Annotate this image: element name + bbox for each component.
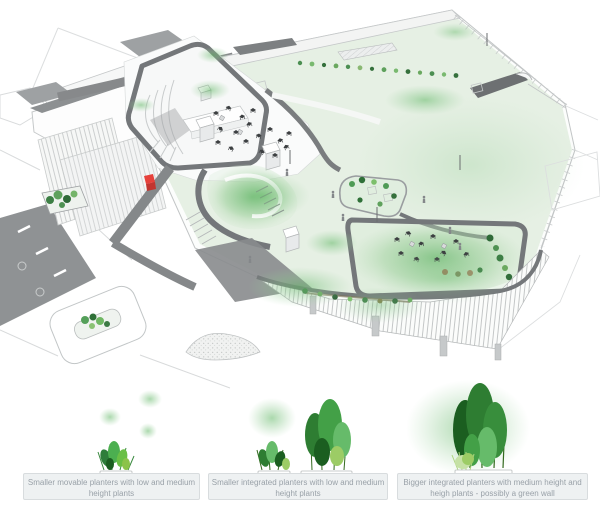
legend-illustrations [98, 380, 530, 477]
architectural-diagram-page: Smaller movable planters with low and me… [0, 0, 600, 523]
axonometric-roof-plan [0, 0, 600, 523]
legend-caption-smaller-integrated-planters: Smaller integrated planters with low and… [208, 473, 388, 500]
movable-planter-icon [98, 390, 162, 477]
bigger-integrated-planter-icon [406, 380, 530, 476]
smaller-integrated-planter-icon [248, 398, 352, 477]
legend-caption-bigger-integrated-planters: Bigger integrated planters with medium h… [397, 473, 588, 500]
legend-caption-movable-planters: Smaller movable planters with low and me… [23, 473, 200, 500]
